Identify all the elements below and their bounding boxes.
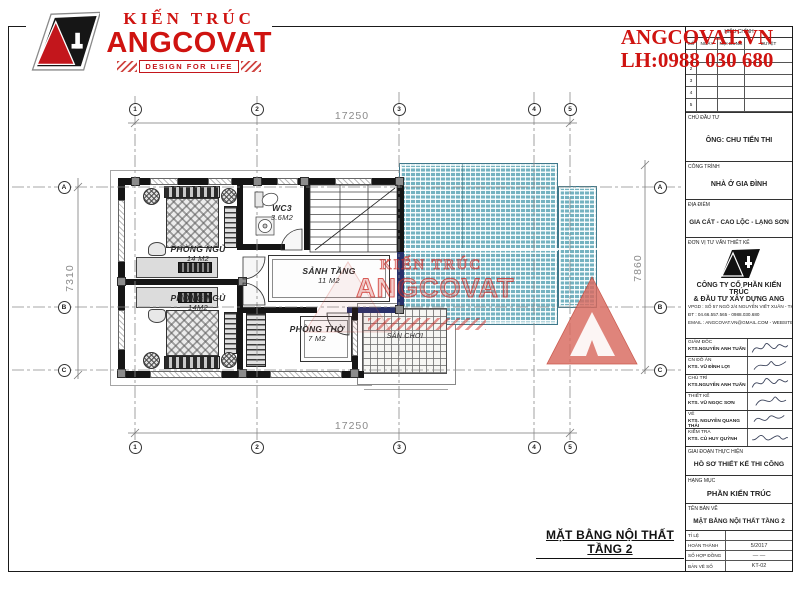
wardrobe-1 bbox=[224, 206, 237, 248]
logo-tagline: DESIGN FOR LIFE bbox=[139, 60, 239, 73]
eave-line bbox=[110, 385, 372, 386]
wall bbox=[118, 279, 244, 285]
grid-bubble: 4 bbox=[528, 441, 541, 454]
grid-bubble: 1 bbox=[129, 103, 142, 116]
company-email: EMAIL : ANGCOVAT.VN@GMAIL.COM - WEBSITE … bbox=[686, 319, 792, 327]
signer-role: VẼ bbox=[688, 412, 747, 417]
room-name: SẢNH TẦNG bbox=[294, 266, 364, 276]
company-section: ĐƠN VỊ TƯ VẤN THIẾT KẾ CÔNG TY CỔ PHẦN K… bbox=[686, 238, 792, 339]
contact-phone: LH:0988 030 680 bbox=[598, 49, 796, 72]
project-value: NHÀ Ở GIA ĐÌNH bbox=[686, 170, 792, 199]
roof-side bbox=[558, 186, 597, 308]
grid-bubble: 5 bbox=[564, 103, 577, 116]
signer-role: CHỦ TRÌ bbox=[688, 376, 747, 381]
room-area: 14 M2 bbox=[158, 254, 238, 263]
grid-bubble-label: 1 bbox=[133, 444, 137, 451]
window bbox=[270, 371, 342, 378]
meta-value: 5/2017 bbox=[726, 541, 792, 550]
plant-icon bbox=[143, 352, 160, 369]
signer-row: CN ĐỒ ÁNKTS. VŨ ĐÌNH LỢI bbox=[686, 357, 792, 375]
grid-bubble: 2 bbox=[251, 103, 264, 116]
revision-row-num: 4 bbox=[686, 87, 697, 99]
stage-value: HỒ SƠ THIẾT KẾ THI CÔNG bbox=[686, 455, 792, 475]
company-name2: & ĐẦU TƯ XÂY DỰNG ANG bbox=[686, 296, 792, 303]
signer-row: GIÁM ĐỐCKTS.NGUYỄN ANH TUẤN bbox=[686, 339, 792, 357]
signer-info: THIẾT KẾKTS. VŨ NGỌC SƠN bbox=[686, 393, 748, 410]
column-marker bbox=[395, 305, 404, 314]
grid-bubble-label: 4 bbox=[532, 444, 536, 451]
drawing-name-section: TÊN BẢN VẼ MẶT BẰNG NỘI THẤT TẦNG 2 bbox=[686, 504, 792, 531]
grid-bubble: 3 bbox=[393, 103, 406, 116]
signer-info: CN ĐỒ ÁNKTS. VŨ ĐÌNH LỢI bbox=[686, 357, 748, 374]
company-phone: ĐT : 04.66.557.565 - 0988.030.680 bbox=[686, 311, 792, 319]
column-marker bbox=[253, 177, 262, 186]
grid-bubble: 5 bbox=[564, 441, 577, 454]
window bbox=[150, 371, 222, 378]
signature-icon bbox=[748, 339, 792, 356]
room-label-bedroom1: PHÒNG NGỦ 14 M2 bbox=[158, 244, 238, 263]
watermark-line1: KIẾN TRÚC bbox=[356, 258, 506, 274]
watermark-text: KIẾN TRÚC ANGCOVAT bbox=[356, 258, 506, 302]
signer-info: VẼKTS. NGUYỄN QUANG THÁI bbox=[686, 411, 748, 428]
wardrobe-2 bbox=[224, 312, 237, 354]
signature-icon bbox=[748, 375, 792, 392]
window bbox=[277, 178, 298, 185]
logo-name: ANGCOVAT bbox=[106, 29, 272, 58]
dim-right: 7860 bbox=[632, 238, 644, 298]
column-marker bbox=[117, 369, 126, 378]
location-section: ĐỊA ĐIỂM GIA CÁT - CAO LỘC - LẠNG SƠN bbox=[686, 200, 792, 238]
revision-cell bbox=[697, 87, 718, 99]
logo: KIẾN TRÚC ANGCOVAT DESIGN FOR LIFE bbox=[26, 10, 272, 96]
grid-bubble-label: C bbox=[658, 367, 663, 374]
signer-name: KTS. CÙ HUY QUỲNH bbox=[688, 437, 747, 442]
terrace-step-line bbox=[364, 389, 448, 390]
revision-cell bbox=[697, 75, 718, 87]
grid-bubble-label: 2 bbox=[255, 106, 259, 113]
revision-cell bbox=[745, 75, 792, 87]
contact-overlay: ANGCOVAT.VN LH:0988 030 680 bbox=[598, 26, 796, 71]
eave-line bbox=[110, 170, 111, 386]
dim-left: 7310 bbox=[64, 248, 76, 308]
room-name: WC3 bbox=[252, 203, 312, 213]
dim-top: 17250 bbox=[312, 110, 392, 122]
grid-bubble-label: B bbox=[658, 304, 663, 311]
room-area: 7 M2 bbox=[282, 334, 352, 343]
room-label-playground: SÂN CHƠI bbox=[370, 333, 440, 341]
window bbox=[118, 310, 125, 350]
hatch-decor-icon bbox=[117, 61, 137, 72]
signer-name: KTS.NGUYỄN ANH TUẤN bbox=[688, 347, 747, 352]
revision-row-num: 5 bbox=[686, 99, 697, 111]
bed-headboard bbox=[164, 186, 220, 198]
bed-1 bbox=[166, 198, 219, 248]
room-name: SÂN CHƠI bbox=[370, 333, 440, 341]
room-name: PHÒNG THỜ bbox=[282, 324, 352, 334]
revision-cell bbox=[745, 87, 792, 99]
grid-bubble: A bbox=[654, 181, 667, 194]
grid-bubble: A bbox=[58, 181, 71, 194]
revision-cell bbox=[718, 87, 745, 99]
signer-info: CHỦ TRÌKTS.NGUYỄN ANH TUẤN bbox=[686, 375, 748, 392]
wall bbox=[237, 178, 243, 250]
sheet: KIẾN TRÚC ANGCOVAT 1 2 3 4 5 1 2 3 4 5 A… bbox=[0, 0, 800, 600]
altar-cabinet bbox=[246, 313, 266, 367]
location-value: GIA CÁT - CAO LỘC - LẠNG SƠN bbox=[686, 208, 792, 237]
owner-value: ÔNG: CHU TIẾN THI bbox=[686, 121, 792, 162]
location-label: ĐỊA ĐIỂM bbox=[686, 200, 792, 208]
category-section: HẠNG MỤC PHẦN KIẾN TRÚC bbox=[686, 476, 792, 505]
room-name: PHÒNG NGỦ bbox=[158, 244, 238, 254]
project-section: CÔNG TRÌNH NHÀ Ở GIA ĐÌNH bbox=[686, 162, 792, 200]
owner-label: CHỦ ĐẦU TƯ bbox=[686, 113, 792, 121]
owner-section: CHỦ ĐẦU TƯ ÔNG: CHU TIẾN THI bbox=[686, 113, 792, 163]
signature-icon bbox=[748, 357, 792, 374]
room-label-worship: PHÒNG THỜ 7 M2 bbox=[282, 324, 352, 343]
plan-title: MẶT BẰNG NỘI THẤT TẦNG 2 bbox=[536, 528, 684, 559]
stage-label: GIAI ĐOẠN THỰC HIỆN bbox=[686, 447, 792, 455]
meta-label: HOÀN THÀNH bbox=[686, 541, 726, 550]
signature-icon bbox=[748, 393, 792, 410]
plant-icon bbox=[221, 352, 237, 368]
window bbox=[150, 178, 178, 185]
meta-label: SỐ HỢP ĐỒNG bbox=[686, 551, 726, 560]
room-label-bedroom2: PHÒNG NGỦ 14M2 bbox=[158, 293, 238, 312]
roof-side-ridge-line bbox=[558, 248, 597, 250]
signer-row: THIẾT KẾKTS. VŨ NGỌC SƠN bbox=[686, 393, 792, 411]
title-block: HIỆU CHỈNH SỐ NGÀY NỘI DUNG DUYỆT 1 2 3 … bbox=[685, 26, 793, 572]
grid-bubble: 1 bbox=[129, 441, 142, 454]
grid-bubble: B bbox=[654, 301, 667, 314]
grid-bubble: C bbox=[654, 364, 667, 377]
company-address: VPGD : SỐ 57 NGÕ 2/4 NGUYỄN VIẾT XUÂN - … bbox=[686, 303, 792, 311]
meta-row: TỈ LỆ bbox=[686, 531, 792, 541]
company-logo bbox=[686, 248, 792, 280]
grid-bubble-label: 5 bbox=[568, 106, 572, 113]
grid-bubble-label: 1 bbox=[133, 106, 137, 113]
room-label-hall: SẢNH TẦNG 11 M2 bbox=[294, 266, 364, 285]
company-logo-icon bbox=[716, 248, 762, 280]
grid-bubble: C bbox=[58, 364, 71, 377]
contact-website: ANGCOVAT.VN bbox=[598, 26, 796, 49]
grid-bubble-label: C bbox=[62, 367, 67, 374]
revision-cell bbox=[697, 99, 718, 111]
angcovat-logo-icon bbox=[26, 10, 100, 76]
column-marker bbox=[131, 177, 140, 186]
wall bbox=[237, 244, 285, 250]
meta-row: SỐ HỢP ĐỒNG — — bbox=[686, 551, 792, 561]
signer-role: GIÁM ĐỐC bbox=[688, 340, 747, 345]
desk-item bbox=[178, 262, 212, 273]
bed-2 bbox=[166, 310, 219, 356]
meta-row: HOÀN THÀNH 5/2017 bbox=[686, 541, 792, 551]
room-area: 3.6M2 bbox=[252, 213, 312, 222]
bed-headboard bbox=[164, 356, 220, 369]
signer-name: KTS. NGUYỄN QUANG THÁI bbox=[688, 419, 747, 429]
column-marker bbox=[395, 177, 404, 186]
project-label: CÔNG TRÌNH bbox=[686, 162, 792, 170]
company-name1: CÔNG TY CỔ PHẦN KIẾN TRÚC bbox=[686, 282, 792, 296]
hatch-decor-icon bbox=[241, 61, 261, 72]
stage-section: GIAI ĐOẠN THỰC HIỆN HỒ SƠ THIẾT KẾ THI C… bbox=[686, 447, 792, 476]
window bbox=[208, 178, 232, 185]
signer-role: KIỂM TRA bbox=[688, 430, 747, 435]
meta-value: KT-02 bbox=[726, 561, 792, 571]
revision-cell bbox=[718, 99, 745, 111]
signer-name: KTS. VŨ ĐÌNH LỢI bbox=[688, 365, 747, 370]
column-marker bbox=[238, 277, 247, 286]
column-marker bbox=[300, 177, 309, 186]
meta-value: — — bbox=[726, 551, 792, 560]
meta-label: TỈ LỆ bbox=[686, 531, 726, 540]
room-label-wc3: WC3 3.6M2 bbox=[252, 203, 312, 222]
logo-text: KIẾN TRÚC ANGCOVAT DESIGN FOR LIFE bbox=[106, 10, 272, 73]
window bbox=[352, 320, 358, 356]
signer-name: KTS.NGUYỄN ANH TUẤN bbox=[688, 383, 747, 388]
eave-line bbox=[110, 170, 406, 171]
logo-tagline-row: DESIGN FOR LIFE bbox=[117, 60, 261, 73]
grid-bubble: 3 bbox=[393, 441, 406, 454]
signature-icon bbox=[748, 429, 792, 446]
signer-row: CHỦ TRÌKTS.NGUYỄN ANH TUẤN bbox=[686, 375, 792, 393]
category-value: PHẦN KIẾN TRÚC bbox=[686, 484, 792, 504]
grid-bubble-label: A bbox=[62, 184, 67, 191]
roof-ridge-line bbox=[399, 248, 558, 251]
room-name: PHÒNG NGỦ bbox=[158, 293, 238, 303]
drawing-name-value: MẶT BẰNG NỘI THẤT TẦNG 2 bbox=[686, 512, 792, 530]
revision-cell bbox=[745, 99, 792, 111]
grid-bubble-label: 2 bbox=[255, 444, 259, 451]
grid-bubble-label: 4 bbox=[532, 106, 536, 113]
logo-title: KIẾN TRÚC bbox=[123, 10, 255, 29]
roof-hip-line bbox=[462, 164, 463, 248]
grid-bubble-label: 3 bbox=[397, 444, 401, 451]
grid-bubble: 2 bbox=[251, 441, 264, 454]
meta-label: BẢN VẼ SỐ bbox=[686, 561, 726, 571]
wall bbox=[397, 178, 404, 252]
grid-bubble-label: 3 bbox=[397, 106, 401, 113]
grid-bubble-label: 5 bbox=[568, 444, 572, 451]
signer-row: KIỂM TRAKTS. CÙ HUY QUỲNH bbox=[686, 429, 792, 447]
signer-role: CN ĐỒ ÁN bbox=[688, 358, 747, 363]
revision-cell bbox=[718, 75, 745, 87]
category-label: HẠNG MỤC bbox=[686, 476, 792, 484]
signer-info: GIÁM ĐỐCKTS.NGUYỄN ANH TUẤN bbox=[686, 339, 748, 356]
plant-icon bbox=[221, 188, 237, 204]
room-area: 11 M2 bbox=[294, 276, 364, 285]
signer-row: VẼKTS. NGUYỄN QUANG THÁI bbox=[686, 411, 792, 429]
meta-row: BẢN VẼ SỐ KT-02 bbox=[686, 561, 792, 571]
signer-info: KIỂM TRAKTS. CÙ HUY QUỲNH bbox=[686, 429, 748, 446]
grid-bubble: 4 bbox=[528, 103, 541, 116]
company-label: ĐƠN VỊ TƯ VẤN THIẾT KẾ bbox=[686, 238, 792, 246]
meta-value bbox=[726, 531, 792, 540]
watermark-line2: ANGCOVAT bbox=[356, 274, 506, 302]
watermark-hatch bbox=[368, 318, 486, 330]
signer-name: KTS. VŨ NGỌC SƠN bbox=[688, 401, 747, 406]
plant-icon bbox=[143, 188, 160, 205]
drawing-name-label: TÊN BẢN VẼ bbox=[686, 504, 792, 512]
room-area: 14M2 bbox=[158, 303, 238, 312]
column-marker bbox=[350, 369, 359, 378]
window bbox=[335, 178, 372, 185]
signer-role: THIẾT KẾ bbox=[688, 394, 747, 399]
revision-row-num: 3 bbox=[686, 75, 697, 87]
dim-bottom: 17250 bbox=[312, 420, 392, 432]
column-marker bbox=[238, 369, 247, 378]
column-marker bbox=[117, 277, 126, 286]
signature-icon bbox=[748, 411, 792, 428]
window bbox=[118, 200, 125, 262]
grid-bubble-label: A bbox=[658, 184, 663, 191]
